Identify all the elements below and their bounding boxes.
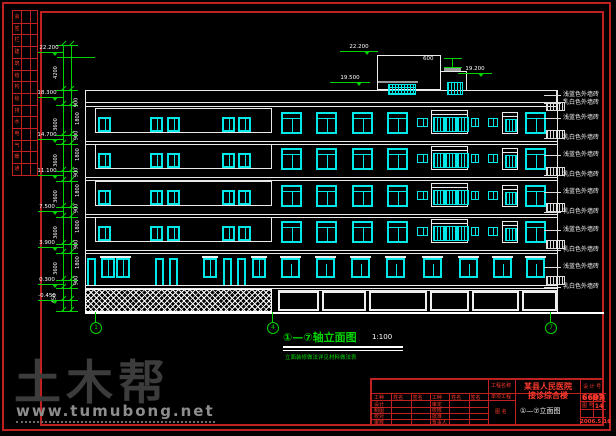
storefront	[322, 291, 366, 311]
callout-leader	[544, 230, 561, 231]
window-small	[150, 226, 163, 241]
dim-text: 3600	[54, 226, 59, 239]
elevation-value: -0.450	[34, 293, 60, 299]
material-swatch	[546, 167, 565, 176]
drawing-note: 立面装修做法详见材料做法表	[285, 353, 357, 361]
elevation-value: 18.300	[34, 90, 60, 96]
stair-pane	[445, 153, 457, 168]
ground-line	[85, 312, 604, 314]
window-vent	[471, 191, 479, 200]
window-small	[238, 117, 251, 132]
tb-project-label: 工程名称	[491, 383, 511, 389]
stair-pane	[457, 117, 469, 132]
dim-text: 4200	[54, 66, 59, 79]
callout-leader	[544, 192, 561, 193]
material-swatch	[546, 240, 565, 249]
tb-sig-rowline	[372, 413, 488, 414]
narrow-window	[502, 185, 518, 207]
stair-pane	[505, 155, 517, 168]
window-2f-large	[459, 258, 478, 278]
stair-pane	[433, 226, 445, 241]
window-small	[238, 226, 251, 241]
window-small	[222, 153, 235, 168]
window-small	[98, 117, 111, 132]
window-2f-large	[493, 258, 512, 278]
window-large	[281, 112, 302, 134]
axis-line	[550, 312, 551, 322]
elevation-flag-line	[38, 247, 64, 248]
title-underline-thin	[283, 350, 403, 351]
callout-leader	[544, 250, 561, 251]
window-vent	[471, 154, 479, 163]
narrow-window	[502, 221, 518, 243]
dim-text: 900	[74, 276, 79, 286]
callout-text: 乳白色外墙砖	[563, 246, 599, 253]
elevation-flag-line	[38, 211, 64, 212]
stair-pane	[445, 226, 457, 241]
window-large	[352, 221, 373, 243]
elevation-flag-line	[458, 73, 492, 74]
window-vent	[471, 118, 479, 127]
elevation-flag-line	[38, 52, 64, 53]
dim-text: 1800	[76, 220, 81, 233]
dim-text: 3600	[54, 118, 59, 131]
drawing-scale: 1:100	[372, 333, 392, 341]
window-small	[167, 190, 180, 205]
stair-pane	[445, 190, 457, 205]
tb-divider	[515, 380, 516, 424]
material-swatch	[546, 130, 565, 139]
axis-line	[272, 312, 273, 322]
window-large	[387, 185, 408, 207]
window-small	[150, 190, 163, 205]
stair-window	[431, 219, 468, 243]
dim-text: 1800	[76, 112, 81, 125]
elevation-flag-triangle	[52, 247, 58, 251]
door	[223, 258, 232, 285]
axis-bubble: 7	[545, 322, 557, 334]
dim-text: 900	[74, 168, 79, 178]
window-large	[316, 112, 337, 134]
stair-pane	[505, 119, 517, 132]
tb-sig-rowline	[372, 407, 488, 408]
parapet-band	[85, 90, 557, 103]
plinth-hatch	[85, 289, 272, 312]
tb-divider	[488, 380, 489, 424]
callout-text: 浅蓝色外墙砖	[563, 114, 599, 121]
elevation-flag-line	[38, 97, 64, 98]
elevation-value: 14.700	[34, 132, 60, 138]
window-small	[222, 190, 235, 205]
callout-text: 乳白色外墙砖	[563, 171, 599, 178]
roof-gray-bar	[378, 81, 418, 83]
window-vent	[488, 227, 498, 236]
window-large	[387, 112, 408, 134]
window-vent	[417, 118, 428, 127]
door	[237, 258, 246, 285]
dim-text: 900	[74, 98, 79, 108]
callout-leader	[544, 95, 561, 96]
window-large	[352, 112, 373, 134]
tb-drawing-name: ①—⑦立面图	[520, 407, 561, 415]
callout-text: 浅蓝色外墙砖	[563, 151, 599, 158]
title-underline	[283, 346, 403, 348]
stair-window	[431, 146, 468, 170]
window-large	[525, 148, 546, 170]
window-2f	[101, 258, 115, 278]
window-vent	[488, 191, 498, 200]
window-large	[316, 148, 337, 170]
building-edge-left	[85, 90, 86, 312]
callout-text: 乳白色外墙砖	[563, 208, 599, 215]
storefront	[522, 291, 557, 311]
window-large	[281, 185, 302, 207]
storefront	[472, 291, 519, 311]
window-2f-large	[351, 258, 370, 278]
tb-item-label: 单项工程	[491, 394, 511, 400]
storefront	[430, 291, 469, 311]
tb-type-label: 图 别	[582, 395, 594, 401]
window-large	[281, 221, 302, 243]
stair-pane	[457, 226, 469, 241]
stair-window	[431, 110, 468, 134]
window-small	[167, 153, 180, 168]
dim-text: 3600	[54, 190, 59, 203]
stair-window	[431, 183, 468, 207]
axis-bubble: 4	[267, 322, 279, 334]
tb-sig-role: 负责人	[432, 420, 447, 426]
window-small	[150, 153, 163, 168]
tb-name-label: 图 名	[495, 409, 507, 415]
stair-pane	[433, 117, 445, 132]
elevation-flag-triangle	[52, 284, 58, 288]
tb-no-label: 图 号	[582, 403, 594, 409]
window-large	[387, 221, 408, 243]
window-large	[525, 221, 546, 243]
elevation-flag-line	[38, 175, 64, 176]
narrow-window	[502, 148, 518, 170]
window-2f	[252, 258, 266, 278]
window-2f-large	[316, 258, 335, 278]
elevation-flag-triangle	[52, 52, 58, 56]
window-vent	[471, 227, 479, 236]
dim-text: 3600	[54, 154, 59, 167]
floor-line	[85, 250, 557, 251]
window-small	[167, 117, 180, 132]
window-2f-large	[526, 258, 545, 278]
stair-pane	[433, 153, 445, 168]
tb-sig-header: 签名	[471, 395, 481, 401]
elevation-flag-line	[38, 139, 64, 140]
callout-leader	[544, 287, 561, 288]
cad-sheet: 会签栏建筑结构给排水电气暖通 60022.20019.50019.2004200…	[0, 0, 616, 436]
callout-text: 浅蓝色外墙砖	[563, 226, 599, 233]
material-swatch	[546, 203, 565, 212]
callout-text: 浅蓝色外墙砖	[563, 263, 599, 270]
window-small	[98, 153, 111, 168]
window-2f-large	[281, 258, 300, 278]
window-vent	[417, 191, 428, 200]
callout-text: 乳白色外墙砖	[563, 99, 599, 106]
drawing-title: ①—⑦轴立面图	[283, 329, 357, 345]
elevation-value: 22.200	[340, 44, 378, 50]
storefront	[369, 291, 427, 311]
elevation-value: 19.500	[330, 75, 370, 81]
window-small	[222, 226, 235, 241]
stair-pane	[457, 153, 469, 168]
elevation-value: 7.500	[34, 204, 60, 210]
door	[87, 258, 96, 285]
parapet-line	[85, 106, 557, 107]
callout-leader	[544, 267, 561, 268]
roof-dim-tick	[444, 58, 462, 59]
roof-dim-text: 600	[423, 56, 434, 62]
elevation-flag-line	[340, 51, 378, 52]
stair-pane	[457, 190, 469, 205]
window-2f	[116, 258, 130, 278]
door	[155, 258, 164, 285]
watermark-url: www.tumubong.net	[16, 402, 215, 423]
tb-project-name: 某县人民医院	[517, 382, 579, 391]
tb-sig-rowline	[372, 419, 488, 420]
elevation-flag-line	[330, 82, 370, 83]
elevation-flag-triangle	[52, 211, 58, 215]
elevation-flag-triangle	[52, 175, 58, 179]
tb-sig-header: 姓名	[451, 395, 461, 401]
axis-line	[95, 312, 96, 322]
dim-text: 1800	[76, 256, 81, 269]
window-large	[387, 148, 408, 170]
stair-pane	[445, 117, 457, 132]
floor-line	[85, 253, 557, 254]
callout-text: 浅蓝色外墙砖	[563, 91, 599, 98]
tb-sig-header: 姓名	[393, 395, 403, 401]
callout-leader	[544, 118, 561, 119]
elevation-value: 3.900	[34, 240, 60, 246]
title-block: 工程名称 单项工程 某县人民医院 接诊综合楼 设 计 号 6607 图 名 ①—…	[370, 378, 604, 426]
narrow-window	[502, 112, 518, 134]
window-vent	[488, 154, 498, 163]
dim-text: 900	[74, 131, 79, 141]
elevation-value: 11.100	[34, 168, 60, 174]
door	[169, 258, 178, 285]
tb-item-name: 接诊综合楼	[517, 391, 579, 400]
window-small	[222, 117, 235, 132]
material-swatch	[546, 276, 565, 285]
roof-vent-louver	[447, 82, 463, 95]
floor-line	[85, 214, 557, 215]
tb-sig-header: 工种	[374, 395, 384, 401]
window-small	[238, 190, 251, 205]
window-small	[167, 226, 180, 241]
elevation-flag-triangle	[52, 97, 58, 101]
window-vent	[488, 118, 498, 127]
window-2f-large	[386, 258, 405, 278]
floor-line	[85, 285, 557, 286]
window-2f-large	[423, 258, 442, 278]
window-large	[316, 185, 337, 207]
elevation-flag-line	[38, 284, 64, 285]
window-small	[98, 190, 111, 205]
elevation-value: 0.300	[34, 277, 60, 283]
floor-line	[85, 177, 557, 178]
material-swatch	[546, 102, 565, 111]
tb-sig-role: 审核	[374, 420, 384, 426]
dim-text: 3600	[54, 262, 59, 275]
window-large	[525, 185, 546, 207]
callout-text: 乳白色外墙砖	[563, 283, 599, 290]
callout-text: 乳白色外墙砖	[563, 134, 599, 141]
tb-sig-header: 签名	[413, 395, 423, 401]
elevation-value: 19.200	[458, 66, 492, 72]
stair-pane	[505, 228, 517, 241]
elevation-flag-triangle	[52, 300, 58, 304]
window-vent	[417, 227, 428, 236]
tb-designno-label: 设 计 号	[583, 384, 601, 390]
dim-text: 1800	[76, 184, 81, 197]
tb-no-value: 14	[593, 402, 605, 411]
elevation-flag-triangle	[52, 139, 58, 143]
window-large	[352, 185, 373, 207]
window-vent	[417, 154, 428, 163]
dim-text: 1800	[76, 148, 81, 161]
window-large	[525, 112, 546, 134]
tb-sig-header: 工种	[432, 395, 442, 401]
stair-pane	[433, 190, 445, 205]
elevation-value: 22.200	[36, 45, 62, 51]
elevation-flag-triangle	[364, 51, 370, 55]
callout-leader	[544, 155, 561, 156]
storefront	[278, 291, 319, 311]
stair-pane	[505, 192, 517, 205]
callout-text: 浅蓝色外墙砖	[563, 188, 599, 195]
window-small	[98, 226, 111, 241]
window-large	[281, 148, 302, 170]
dim-text: 900	[74, 204, 79, 214]
window-2f	[203, 258, 217, 278]
elevation-flag-line	[38, 300, 64, 301]
callout-leader	[544, 212, 561, 213]
dim-text: 900	[74, 240, 79, 250]
elevation-flag-triangle	[478, 73, 484, 77]
window-large	[352, 148, 373, 170]
window-large	[316, 221, 337, 243]
axis-bubble: 1	[90, 322, 102, 334]
tb-date-value: 2006.5.16	[580, 418, 606, 427]
elevation-flag-triangle	[356, 82, 362, 86]
roof-vent-crosshatch	[388, 84, 416, 95]
floor-line	[85, 141, 557, 142]
window-small	[150, 117, 163, 132]
window-small	[238, 153, 251, 168]
